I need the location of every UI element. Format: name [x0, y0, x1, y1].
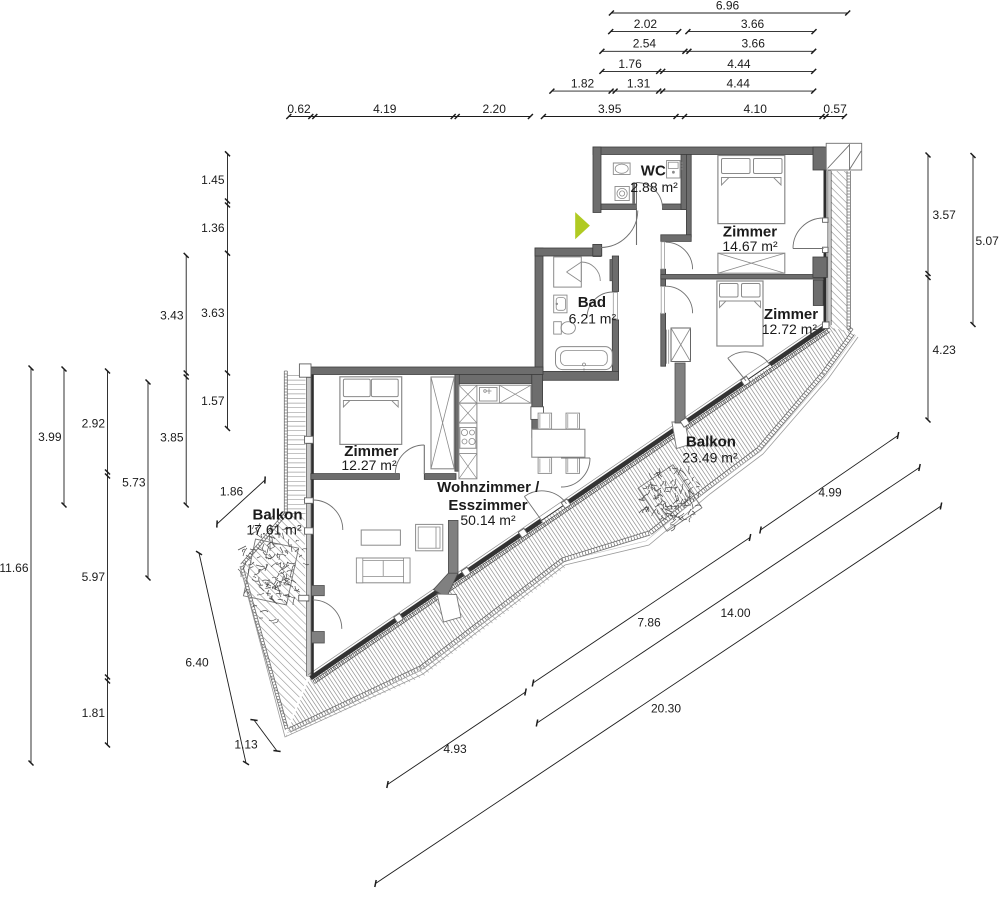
svg-text:6.21 m²: 6.21 m²: [569, 310, 617, 326]
svg-text:5.97: 5.97: [82, 570, 106, 584]
svg-text:11.66: 11.66: [0, 561, 29, 575]
svg-text:14.00: 14.00: [720, 606, 750, 620]
svg-text:4.93: 4.93: [443, 742, 467, 756]
svg-text:12.27 m²: 12.27 m²: [341, 457, 397, 473]
svg-text:0.62: 0.62: [287, 102, 311, 116]
svg-text:2.92: 2.92: [82, 417, 106, 431]
svg-text:4.19: 4.19: [373, 102, 397, 116]
svg-text:WC: WC: [641, 163, 666, 180]
svg-text:3.95: 3.95: [598, 102, 622, 116]
svg-text:1.82: 1.82: [571, 77, 595, 91]
svg-text:1.76: 1.76: [618, 57, 642, 71]
svg-text:2.20: 2.20: [483, 102, 507, 116]
svg-text:6.40: 6.40: [185, 656, 209, 670]
svg-text:1.31: 1.31: [627, 77, 651, 91]
svg-text:4.44: 4.44: [727, 77, 751, 91]
svg-text:1.86: 1.86: [220, 485, 244, 499]
svg-text:1.36: 1.36: [201, 221, 225, 235]
svg-text:Wohnzimmer /: Wohnzimmer /: [437, 479, 540, 496]
svg-text:3.66: 3.66: [742, 37, 766, 51]
svg-text:3.66: 3.66: [741, 17, 765, 31]
svg-text:5.73: 5.73: [122, 476, 146, 490]
svg-text:0.57: 0.57: [823, 102, 847, 116]
svg-text:1.45: 1.45: [201, 173, 225, 187]
svg-text:1.81: 1.81: [82, 706, 106, 720]
svg-text:14.67 m²: 14.67 m²: [722, 238, 778, 254]
svg-text:1.13: 1.13: [234, 738, 258, 752]
svg-text:3.85: 3.85: [160, 431, 184, 445]
svg-text:1.57: 1.57: [201, 394, 225, 408]
svg-text:17.61 m²: 17.61 m²: [246, 522, 302, 538]
svg-text:Balkon: Balkon: [686, 434, 736, 451]
svg-text:6.96: 6.96: [716, 0, 740, 13]
svg-text:4.10: 4.10: [744, 102, 768, 116]
svg-text:3.57: 3.57: [933, 208, 957, 222]
svg-text:3.63: 3.63: [201, 306, 225, 320]
svg-text:2.88 m²: 2.88 m²: [630, 179, 678, 195]
svg-text:23.49 m²: 23.49 m²: [682, 450, 738, 466]
svg-text:5.07: 5.07: [976, 234, 1000, 248]
svg-text:12.72 m²: 12.72 m²: [762, 321, 818, 337]
svg-text:4.99: 4.99: [818, 486, 842, 500]
svg-text:2.02: 2.02: [634, 17, 658, 31]
svg-text:3.43: 3.43: [160, 309, 184, 323]
svg-text:2.54: 2.54: [633, 37, 657, 51]
svg-text:Bad: Bad: [578, 294, 606, 311]
svg-text:20.30: 20.30: [651, 702, 681, 716]
svg-text:50.14 m²: 50.14 m²: [460, 512, 516, 528]
svg-text:7.86: 7.86: [637, 616, 661, 630]
svg-text:4.44: 4.44: [727, 57, 751, 71]
svg-text:3.99: 3.99: [38, 430, 62, 444]
svg-text:4.23: 4.23: [933, 343, 957, 357]
